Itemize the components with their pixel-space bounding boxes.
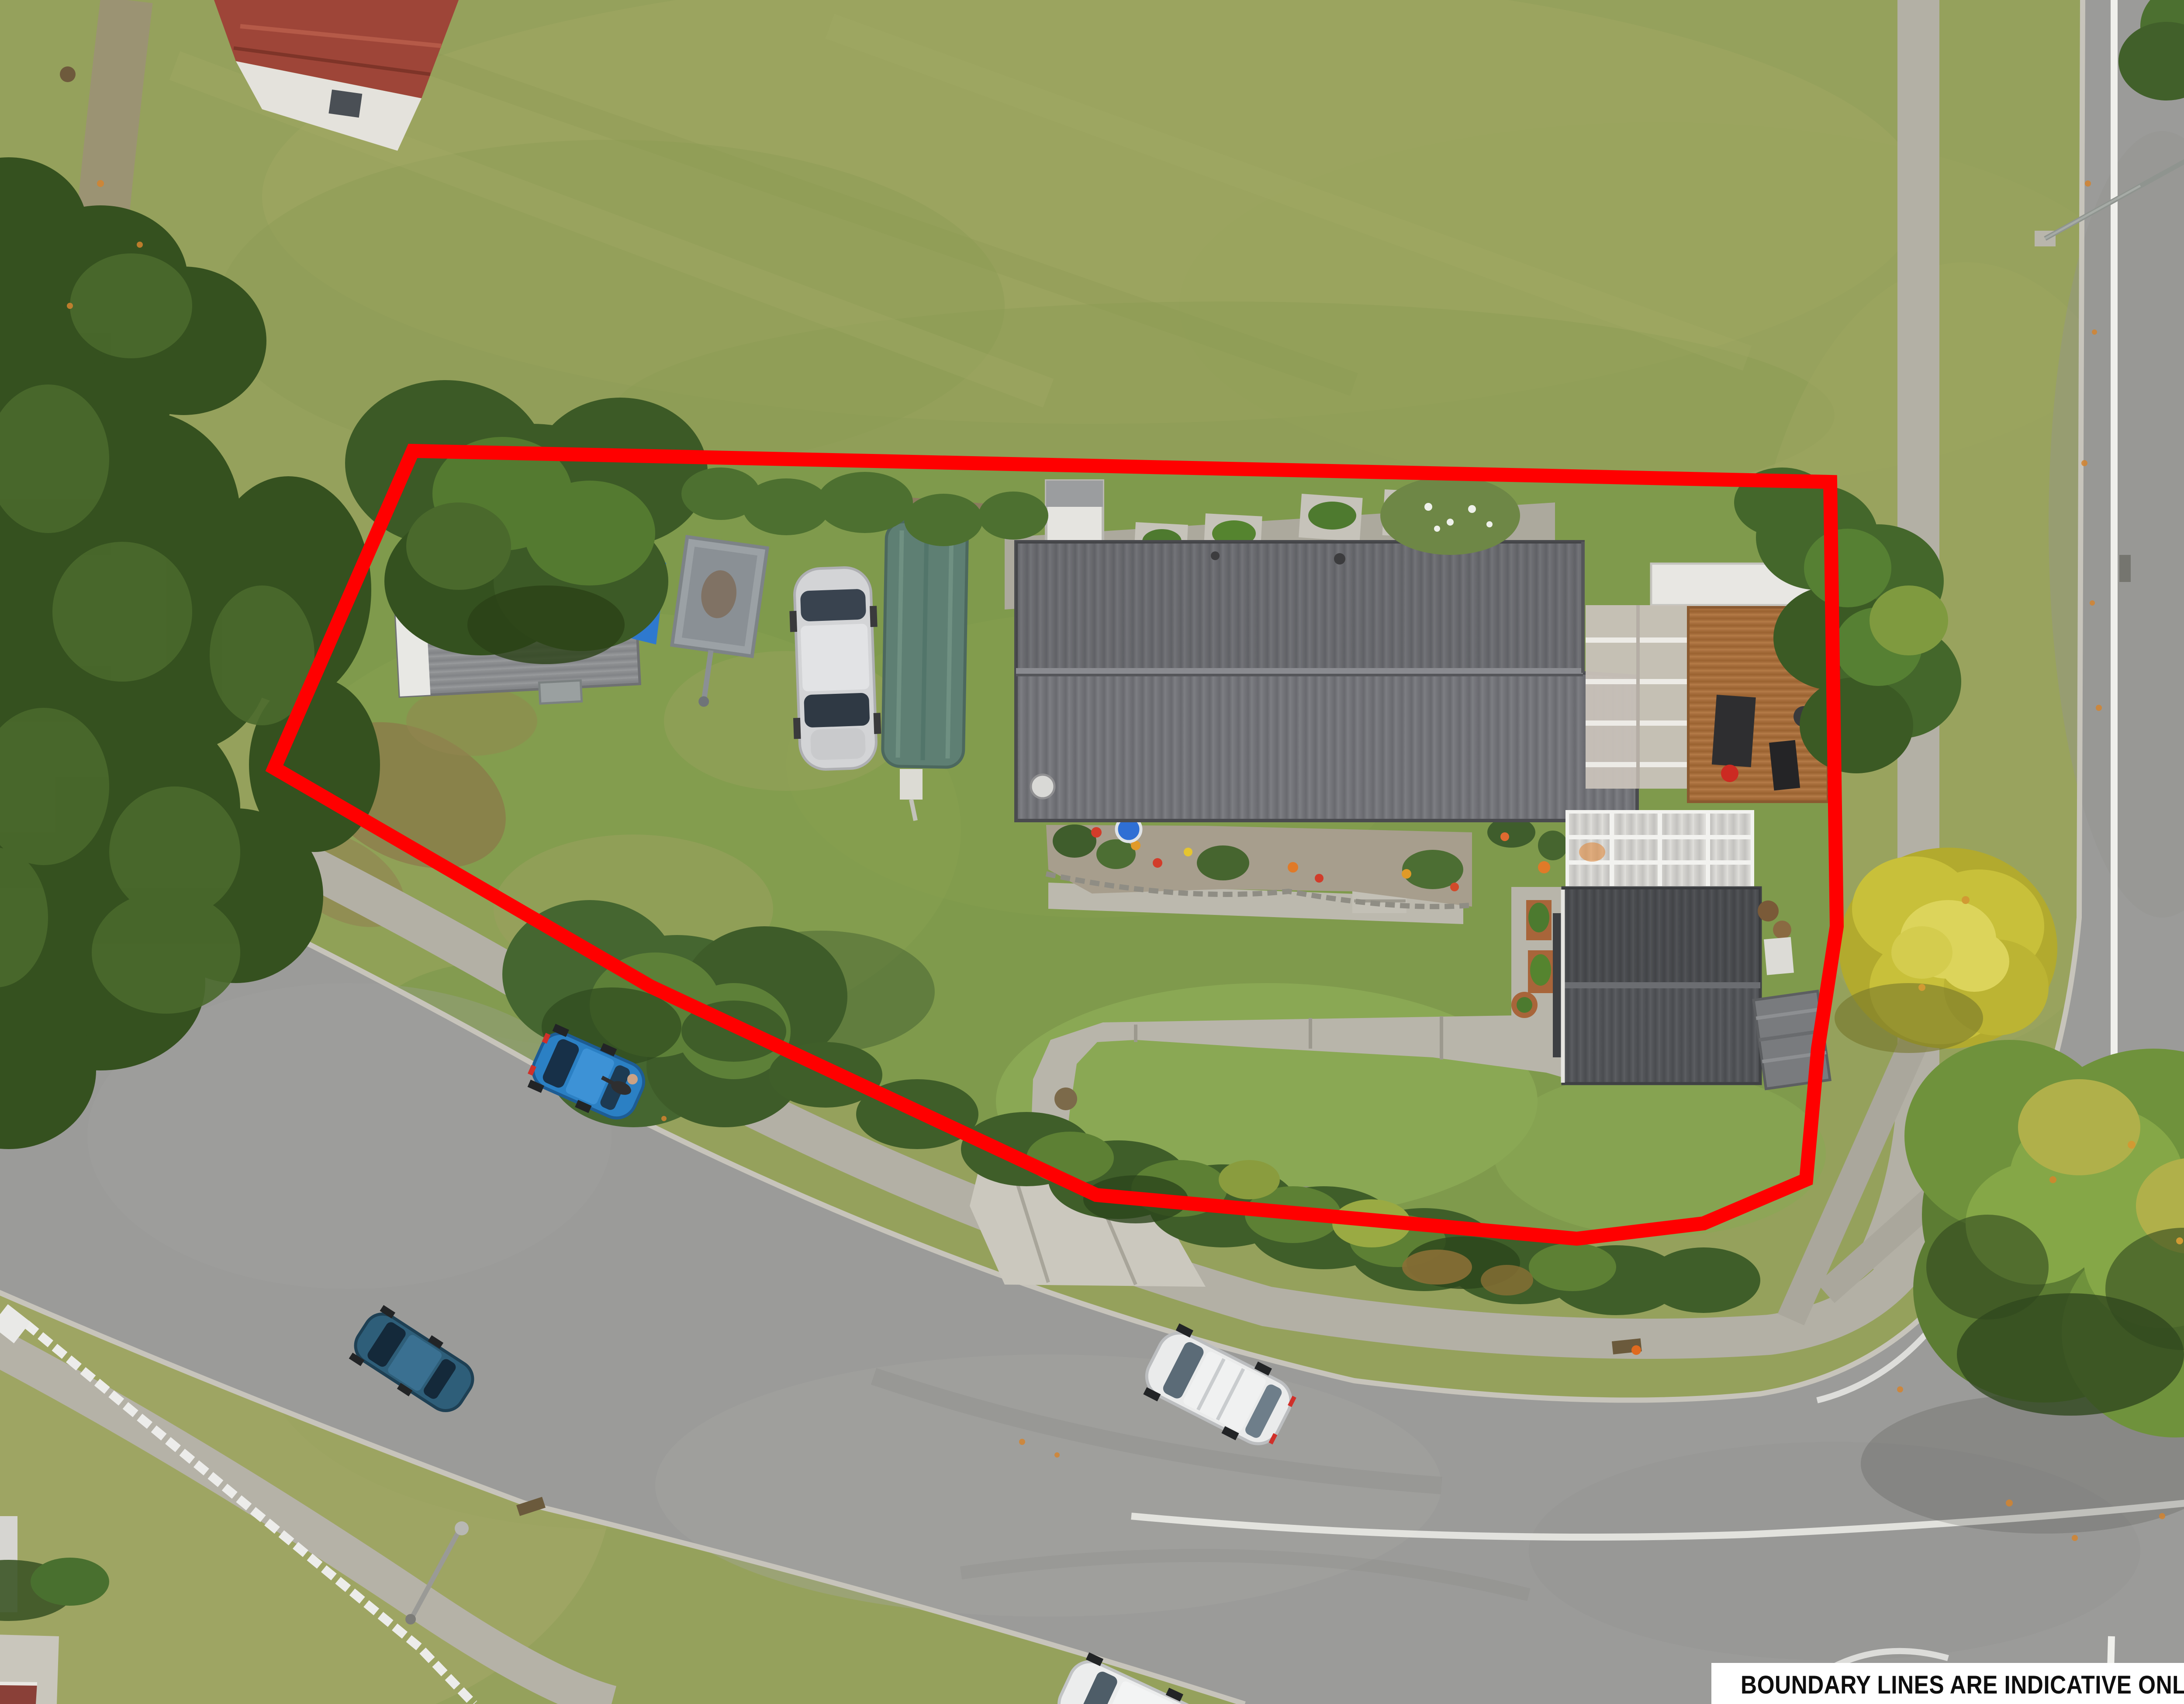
garage [1553,888,1760,1084]
silver-car [788,567,882,771]
mesh-panel [539,680,581,703]
disclaimer-text: BOUNDARY LINES ARE INDICATIVE ONLY [1741,1671,2184,1699]
teal-canopy [882,521,968,767]
satellite-dish [1031,775,1054,798]
bbq-grill [1712,695,1756,767]
roof-vent [1334,553,1345,565]
yellow-autumn-tree [1835,848,2057,1053]
disclaimer-bar: BOUNDARY LINES ARE INDICATIVE ONLY [1711,1663,2184,1704]
utility-cover [1054,1088,1077,1110]
red-planter [1721,765,1738,782]
pergola [1586,605,1690,789]
main-house-roof [1016,542,1637,821]
conservatory [1567,812,1752,888]
trailer-tongue [900,769,923,800]
white-flower-bush [1380,476,1520,555]
window [328,90,362,118]
aerial-photo: BOUNDARY LINES ARE INDICATIVE ONLY [0,0,2184,1704]
white-box [1764,937,1794,975]
road-cone [1631,1345,1641,1355]
aerial-photo-canvas: BOUNDARY LINES ARE INDICATIVE ONLY [0,0,2184,1704]
post [60,66,76,82]
roof-vent [1211,551,1220,560]
